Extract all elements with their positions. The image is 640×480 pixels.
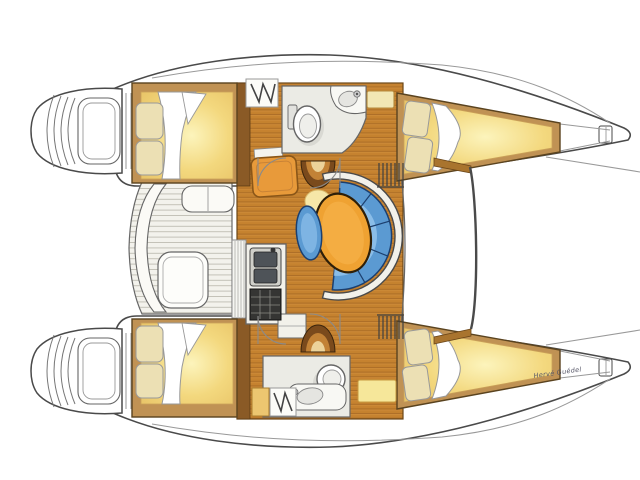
galley-faucet [271, 248, 276, 253]
pillow [404, 328, 433, 365]
forward-crossbeam [434, 158, 476, 344]
starboard-bridle-line [546, 330, 640, 345]
pillow [136, 364, 163, 398]
port-bridle-line [546, 157, 640, 172]
cockpit [129, 182, 246, 318]
starboard-aft-cabin [132, 319, 237, 417]
pillow [404, 136, 433, 173]
sink-basin [254, 269, 277, 283]
starboard-sugar-scoop [31, 328, 131, 413]
pillow [402, 100, 431, 137]
pillow [136, 326, 163, 362]
starboard-locker [252, 388, 269, 416]
pillow [402, 364, 431, 401]
starboard-bulkhead [237, 316, 250, 419]
port-head [282, 86, 366, 153]
boat-plan-drawing: Hervé Guédel [0, 0, 640, 480]
pillow [136, 103, 163, 139]
port-aft-cabin [132, 83, 237, 183]
port-locker [367, 91, 394, 108]
sink-basin [254, 252, 277, 267]
catamaran-floorplan: Hervé Guédel [0, 0, 640, 480]
starboard-shelf-glow [358, 380, 396, 402]
galley-stove [250, 289, 281, 320]
port-sugar-scoop [31, 88, 131, 173]
pillow [136, 141, 163, 175]
